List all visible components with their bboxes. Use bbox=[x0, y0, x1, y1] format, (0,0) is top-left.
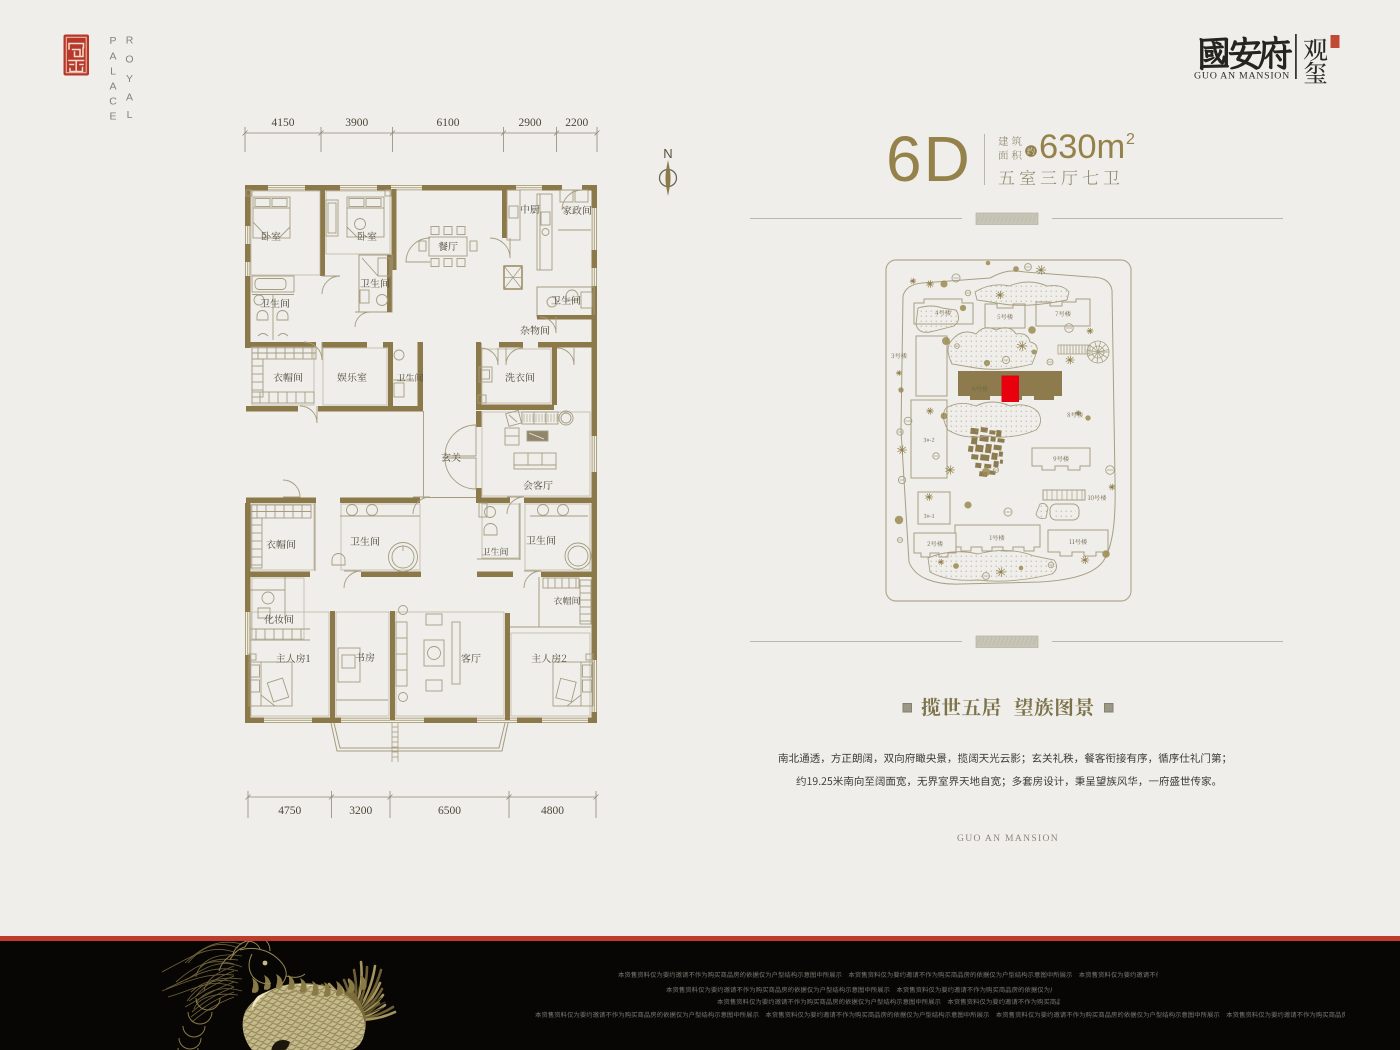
svg-text:N: N bbox=[663, 146, 672, 161]
svg-text:2200: 2200 bbox=[565, 117, 588, 129]
svg-text:E: E bbox=[109, 111, 116, 123]
svg-text:Y: Y bbox=[126, 73, 133, 85]
svg-text:630m: 630m bbox=[1039, 128, 1125, 166]
svg-text:4800: 4800 bbox=[541, 805, 564, 817]
svg-text:GUO AN MANSION: GUO AN MANSION bbox=[957, 833, 1059, 844]
svg-text:A: A bbox=[109, 51, 116, 63]
svg-text:C: C bbox=[109, 96, 117, 108]
svg-text:O: O bbox=[125, 54, 133, 66]
svg-text:A: A bbox=[126, 92, 133, 104]
svg-text:A: A bbox=[109, 81, 116, 93]
svg-text:3200: 3200 bbox=[349, 805, 372, 817]
svg-text:2: 2 bbox=[1126, 131, 1135, 148]
svg-text:6D: 6D bbox=[886, 123, 972, 195]
svg-text:L: L bbox=[127, 109, 133, 121]
svg-text:6100: 6100 bbox=[437, 117, 460, 129]
svg-text:P: P bbox=[109, 35, 116, 47]
svg-text:6500: 6500 bbox=[438, 805, 461, 817]
svg-text:3900: 3900 bbox=[345, 117, 368, 129]
svg-text:L: L bbox=[110, 66, 116, 78]
svg-text:2900: 2900 bbox=[519, 117, 542, 129]
svg-text:R: R bbox=[126, 35, 134, 47]
svg-text:4750: 4750 bbox=[278, 805, 301, 817]
svg-text:4150: 4150 bbox=[272, 117, 295, 129]
svg-text:GUO AN MANSION: GUO AN MANSION bbox=[1194, 71, 1290, 82]
